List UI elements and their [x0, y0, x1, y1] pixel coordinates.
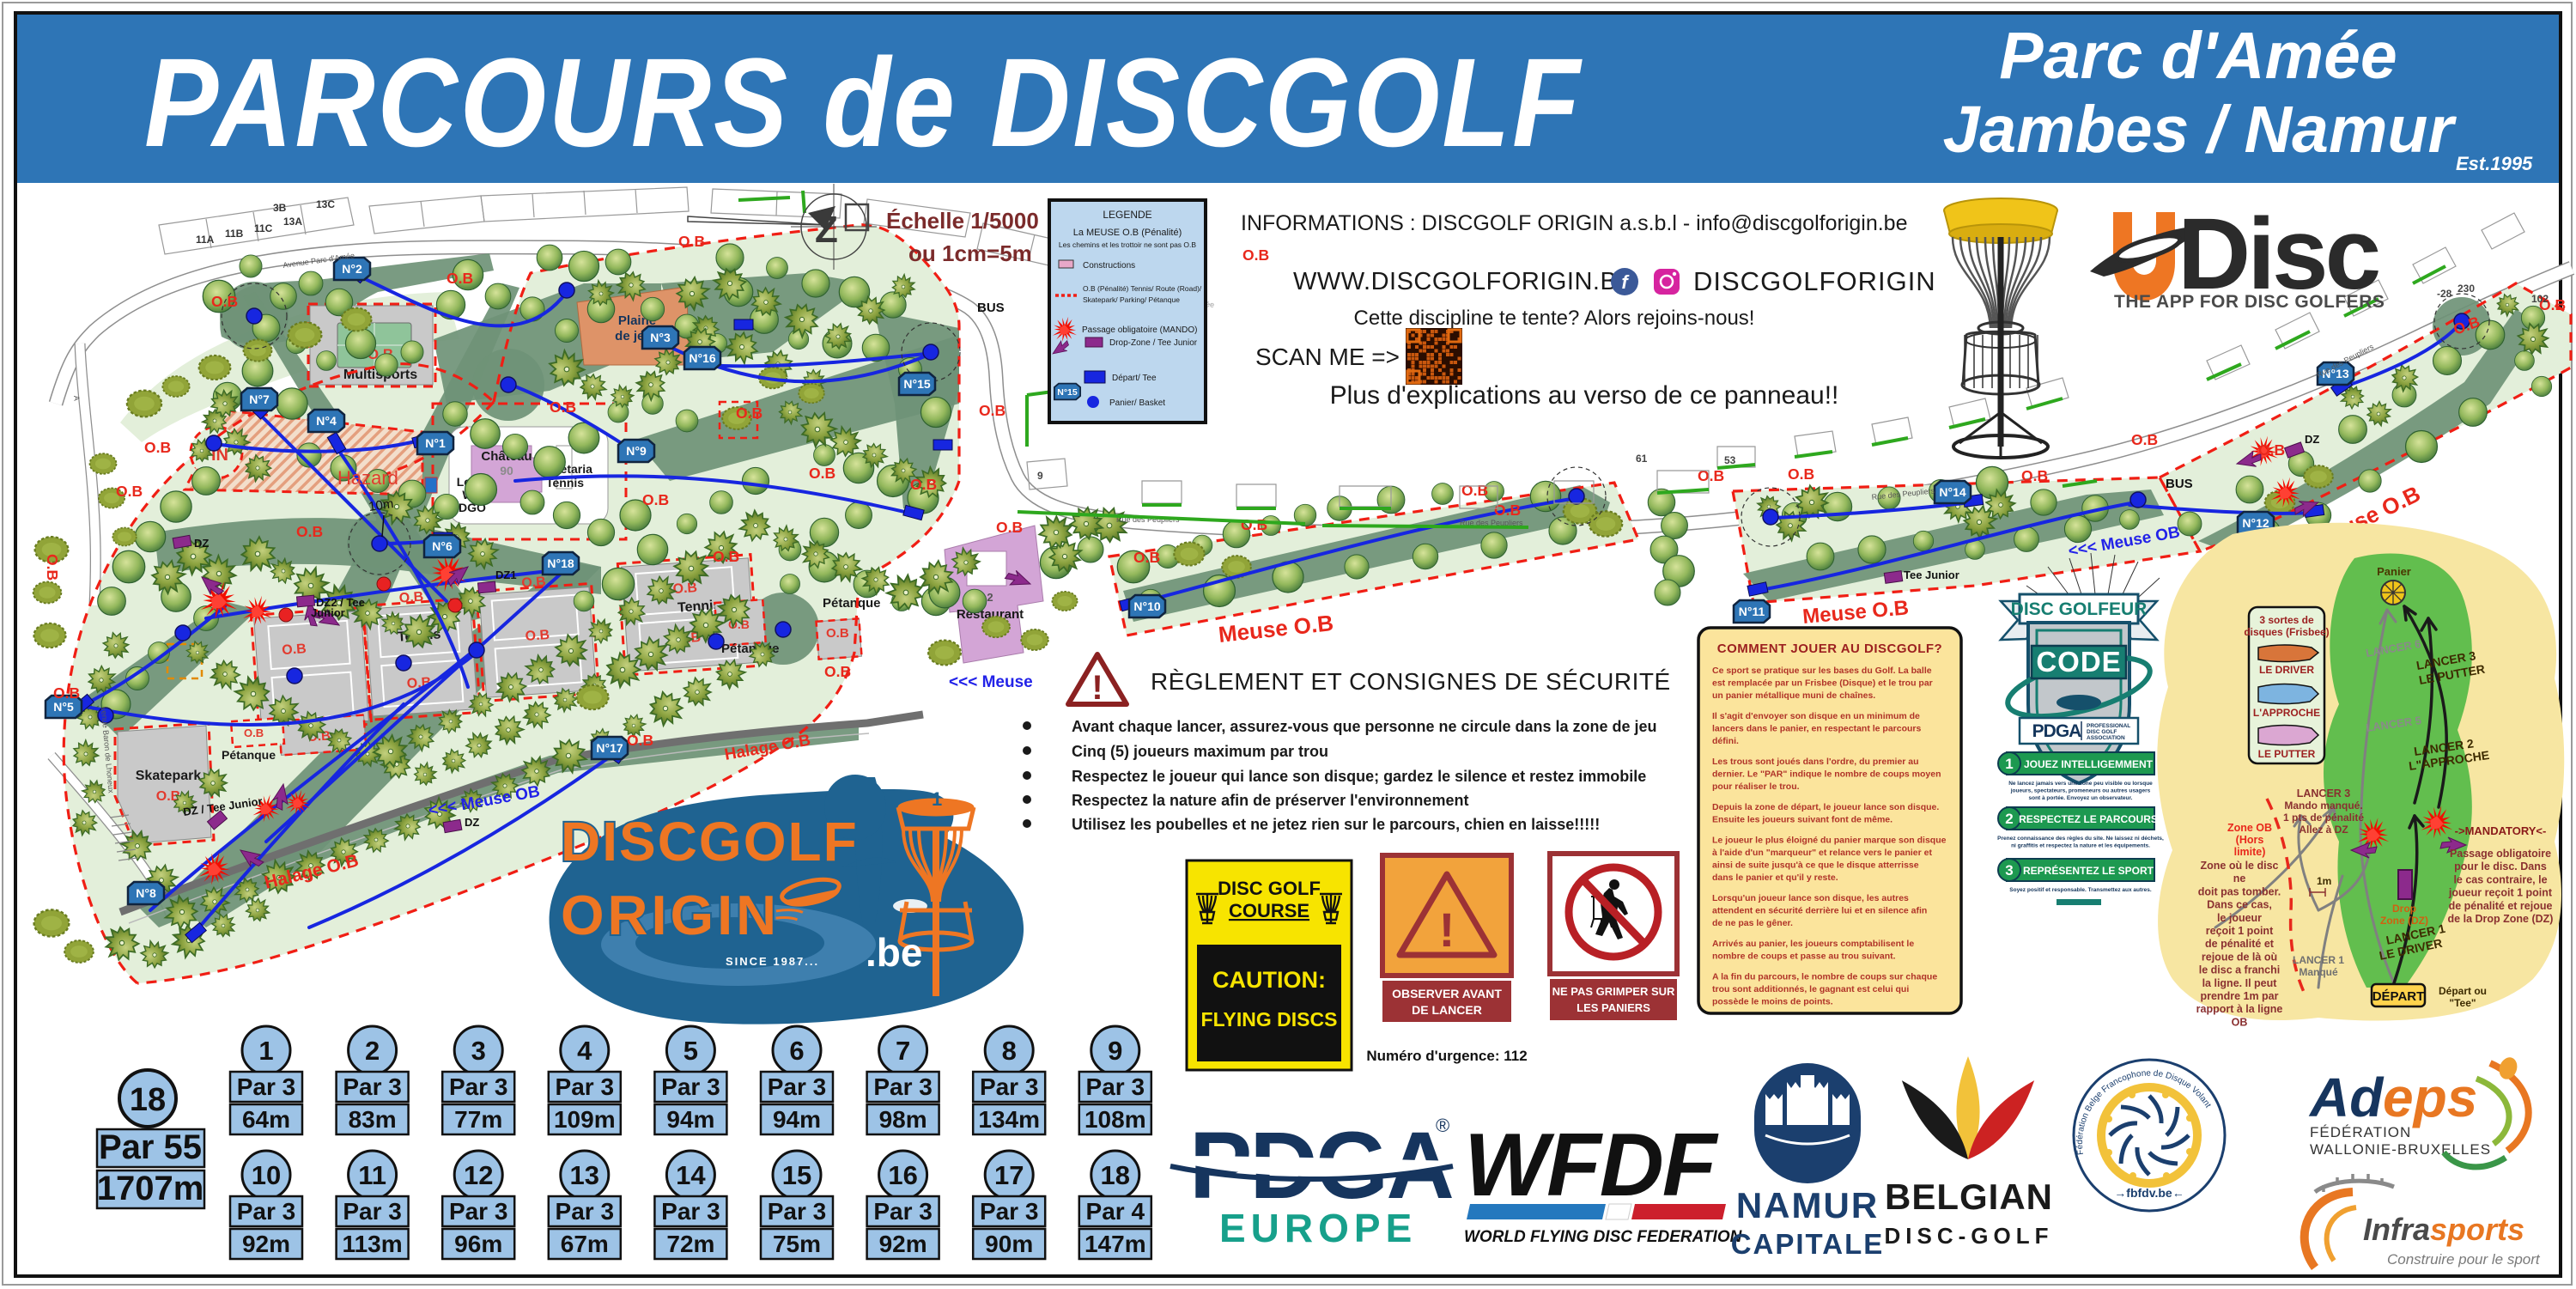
svg-text:Cette discipline te tente? Alo: Cette discipline te tente? Alors rejoins…: [1354, 307, 1755, 330]
svg-text:défini.: défini.: [1712, 736, 1739, 746]
svg-text:attendent en sécurité derrière: attendent en sécurité derrière lui et en…: [1712, 906, 1927, 916]
svg-text:de ne pas le gêner.: de ne pas le gêner.: [1712, 918, 1793, 928]
svg-text:JOUEZ INTELLIGEMMENT: JOUEZ INTELLIGEMMENT: [2024, 758, 2154, 770]
svg-text:108m: 108m: [1084, 1106, 1146, 1133]
svg-text:O.B: O.B: [824, 663, 851, 680]
svg-text:est remplacée par un Frisbee (: est remplacée par un Frisbee (Disque) et…: [1712, 678, 1933, 689]
svg-text:pour réaliser le trou.: pour réaliser le trou.: [1712, 781, 1800, 792]
svg-text:Zone (DZ): Zone (DZ): [2380, 915, 2428, 927]
svg-text:Meuse O.B: Meuse O.B: [1801, 596, 1910, 629]
svg-text:A la fin du parcours, le nombr: A la fin du parcours, le nombre de coups…: [1712, 972, 1937, 982]
svg-text:O.B: O.B: [736, 404, 762, 422]
svg-text:Par 3: Par 3: [237, 1198, 296, 1225]
svg-text:de pénalité et: de pénalité et: [2205, 938, 2275, 950]
svg-text:Par 3: Par 3: [980, 1198, 1039, 1225]
svg-text:N°17: N°17: [596, 741, 623, 755]
svg-text:N°3: N°3: [650, 331, 671, 344]
svg-text:ni graffitis et respectez la n: ni graffitis et respectez la nature et l…: [2011, 843, 2150, 849]
svg-text:Construire pour le sport: Construire pour le sport: [2387, 1251, 2541, 1268]
svg-text:disques (Frisbee): disques (Frisbee): [2244, 626, 2329, 638]
svg-text:O.B: O.B: [144, 439, 171, 456]
svg-text:90: 90: [500, 464, 513, 477]
svg-text:ainsi de suite jusqu'à ce que: ainsi de suite jusqu'à ce que le disque …: [1712, 860, 1919, 871]
svg-text:O.B: O.B: [826, 626, 849, 641]
svg-text:Par 3: Par 3: [661, 1073, 720, 1100]
svg-text:CODE: CODE: [2036, 646, 2121, 678]
svg-text:lancers dans le panier, en res: lancers dans le panier, en respectant le…: [1712, 724, 1922, 734]
svg-text:N°5: N°5: [53, 700, 74, 714]
svg-text:Pétanque: Pétanque: [222, 748, 276, 762]
svg-text:13: 13: [570, 1160, 599, 1190]
svg-text:reçoit 1 point: reçoit 1 point: [2206, 925, 2274, 937]
svg-text:Par 3: Par 3: [556, 1198, 615, 1225]
svg-text:2: 2: [365, 1036, 380, 1066]
svg-text:joueur reçoit 1 point: joueur reçoit 1 point: [2448, 887, 2553, 899]
svg-text:Lorsqu'un joueur lance son dis: Lorsqu'un joueur lance son disque, les a…: [1712, 893, 1909, 903]
svg-text:Allez à DZ: Allez à DZ: [2299, 824, 2348, 836]
svg-text:LE PUTTER: LE PUTTER: [2258, 748, 2316, 760]
svg-text:Par 3: Par 3: [661, 1198, 720, 1225]
svg-text:92m: 92m: [242, 1231, 290, 1257]
svg-text:O.B: O.B: [1461, 482, 1488, 499]
svg-text:COMMENT JOUER AU DISCGOLF?: COMMENT JOUER AU DISCGOLF?: [1717, 641, 1942, 656]
svg-text:LE DRIVER: LE DRIVER: [2259, 664, 2314, 676]
svg-text:trou sont additionnés, le gagn: trou sont additionnés, le gagnant est ce…: [1712, 984, 1909, 994]
svg-text:75m: 75m: [773, 1231, 821, 1257]
svg-text:REPRÉSENTEZ LE SPORT: REPRÉSENTEZ LE SPORT: [2023, 864, 2154, 877]
svg-text:nombre de coups et passe au tr: nombre de coups et passe au trou suivant…: [1712, 952, 1896, 962]
svg-text:53: 53: [1724, 454, 1736, 466]
svg-text:18: 18: [1101, 1160, 1130, 1190]
svg-text:O.B: O.B: [398, 590, 424, 606]
svg-text:Infrasports: Infrasports: [2363, 1212, 2524, 1247]
svg-text:WALLONIE-BRUXELLES: WALLONIE-BRUXELLES: [2310, 1141, 2491, 1158]
svg-text:O.B: O.B: [1698, 467, 1724, 484]
svg-text:O.B: O.B: [1494, 502, 1521, 519]
svg-text:O.B: O.B: [1241, 516, 1267, 533]
svg-text:Passage obligatoire: Passage obligatoire: [2450, 848, 2551, 860]
svg-text:COURSE: COURSE: [1229, 900, 1309, 921]
svg-text:La MEUSE O.B (Pénalité): La MEUSE O.B (Pénalité): [1073, 228, 1182, 238]
svg-text:Ce sport se pratique sur les b: Ce sport se pratique sur les bases du Go…: [1712, 666, 1932, 676]
svg-text:Zone où le disc: Zone où le disc: [2201, 860, 2279, 872]
svg-text:Les chemins et les trottoir ne: Les chemins et les trottoir ne sont pas …: [1059, 240, 1196, 249]
svg-text:Panier/ Basket: Panier/ Basket: [1109, 398, 1165, 408]
svg-text:DISCGOLFORIGIN: DISCGOLFORIGIN: [1693, 266, 1936, 296]
svg-text:N°7: N°7: [249, 392, 270, 406]
svg-text:pour le disc. Dans: pour le disc. Dans: [2454, 860, 2547, 873]
svg-text:dans le panier et qu'il y rest: dans le panier et qu'il y reste.: [1712, 873, 1838, 883]
svg-text:1 pts de pénalité: 1 pts de pénalité: [2283, 812, 2364, 824]
svg-text:O.B: O.B: [525, 628, 550, 644]
svg-text:Avant chaque lancer, assurez-v: Avant chaque lancer, assurez-vous que pe…: [1072, 718, 1657, 735]
svg-text:Départ ou: Départ ou: [2439, 985, 2487, 997]
svg-text:11A: 11A: [196, 234, 215, 246]
svg-text:11C: 11C: [254, 222, 273, 234]
svg-text:Respectez le joueur qui lance: Respectez le joueur qui lance son disque…: [1072, 768, 1646, 785]
svg-text:N°15: N°15: [1057, 387, 1078, 398]
svg-text:Skatepark: Skatepark: [136, 769, 202, 783]
svg-text:Soyez positif et responsable.: Soyez positif et responsable. Transmette…: [2009, 887, 2152, 893]
svg-text:Skatepark/ Parking/ Pétanque: Skatepark/ Parking/ Pétanque: [1083, 295, 1180, 304]
svg-text:Par 4: Par 4: [1086, 1198, 1145, 1225]
svg-text:72m: 72m: [666, 1231, 714, 1257]
svg-text:O.B: O.B: [996, 519, 1023, 536]
svg-text:O.B: O.B: [678, 233, 705, 250]
svg-text:1: 1: [258, 1036, 273, 1066]
svg-text:64m: 64m: [242, 1106, 290, 1133]
svg-text:Pétanque: Pétanque: [823, 596, 881, 611]
svg-text:rejoue de là où: rejoue de là où: [2202, 951, 2277, 963]
svg-text:Par 3: Par 3: [343, 1073, 402, 1100]
svg-text:Par 3: Par 3: [768, 1073, 827, 1100]
svg-text:®: ®: [1436, 1115, 1449, 1136]
svg-text:RESPECTEZ LE PARCOURS: RESPECTEZ LE PARCOURS: [2019, 813, 2158, 825]
svg-text:le disc a franchi: le disc a franchi: [2199, 964, 2280, 976]
svg-text:ORIGIN: ORIGIN: [561, 884, 780, 946]
svg-text:96m: 96m: [454, 1231, 502, 1257]
svg-text:INFORMATIONS : DISCGOLF ORIGIN: INFORMATIONS : DISCGOLF ORIGIN a.s.b.l -…: [1241, 211, 1908, 235]
svg-text:98m: 98m: [879, 1106, 927, 1133]
svg-text:Par 3: Par 3: [768, 1198, 827, 1225]
svg-text:Mando manqué.: Mando manqué.: [2284, 800, 2362, 812]
svg-text:1707m: 1707m: [97, 1170, 204, 1207]
svg-text:N°6: N°6: [432, 539, 453, 553]
svg-text:102: 102: [2531, 293, 2549, 305]
svg-text:230: 230: [2458, 283, 2475, 295]
svg-text:-28: -28: [2437, 288, 2452, 300]
svg-text:90m: 90m: [985, 1231, 1033, 1257]
svg-text:O.B: O.B: [550, 398, 576, 416]
svg-text:ne: ne: [2233, 873, 2246, 885]
svg-text:Par 3: Par 3: [237, 1073, 296, 1100]
svg-text:18: 18: [130, 1082, 166, 1118]
svg-text:le joueur: le joueur: [2217, 912, 2262, 924]
svg-text:rapport à la ligne: rapport à la ligne: [2196, 1003, 2283, 1015]
svg-text:7: 7: [896, 1036, 910, 1066]
svg-text:à l'aide d'un "marqueur" et re: à l'aide d'un "marqueur" et relance vers…: [1712, 848, 1932, 858]
svg-text:O.B: O.B: [296, 523, 323, 540]
svg-text:de pénalité et rejoue: de pénalité et rejoue: [2449, 900, 2553, 912]
svg-text:BUS: BUS: [977, 301, 1005, 315]
svg-text:Ensuite les joueurs suivant fo: Ensuite les joueurs suivant font de même…: [1712, 815, 1893, 825]
svg-text:BUS: BUS: [2166, 477, 2193, 491]
svg-text:(Hors: (Hors: [2236, 834, 2264, 846]
svg-text:O.B: O.B: [713, 548, 739, 565]
svg-text:Panier: Panier: [2377, 565, 2411, 578]
svg-text:.be: .be: [866, 930, 922, 975]
svg-text:9: 9: [1108, 1036, 1122, 1066]
svg-text:LEGENDE: LEGENDE: [1103, 209, 1151, 221]
svg-text:Par 3: Par 3: [449, 1073, 508, 1100]
svg-text:O.B: O.B: [672, 581, 698, 597]
svg-text:DÉPART: DÉPART: [2372, 989, 2425, 1004]
svg-text:DISC GOLF: DISC GOLF: [1218, 878, 1321, 899]
svg-text:O.B: O.B: [642, 491, 669, 508]
svg-text:11B: 11B: [225, 228, 244, 240]
svg-text:Junior: Junior: [311, 606, 345, 619]
svg-text:Plus d'explications au verso d: Plus d'explications au verso de ce panne…: [1330, 381, 1839, 410]
svg-text:113m: 113m: [343, 1231, 403, 1257]
svg-text:O.B: O.B: [116, 483, 143, 500]
svg-text:O.B: O.B: [809, 465, 835, 482]
svg-text:Ne lancez jamais vers une zone: Ne lancez jamais vers une zone peu visib…: [2008, 781, 2153, 787]
svg-text:Il s'agit d'envoyer son disque: Il s'agit d'envoyer son disque en un min…: [1712, 711, 1920, 721]
svg-text:ou 1cm=5m: ou 1cm=5m: [908, 240, 1032, 266]
svg-text:EUROPE: EUROPE: [1219, 1206, 1417, 1250]
svg-text:DISC GOLFEUR: DISC GOLFEUR: [2011, 599, 2148, 619]
svg-text:!: !: [1439, 903, 1455, 957]
svg-text:→fbfdv.be←: →fbfdv.be←: [2114, 1186, 2184, 1200]
svg-text:DZ1: DZ1: [495, 568, 517, 581]
svg-text:2: 2: [2005, 811, 2013, 827]
svg-text:le cas contraire, le: le cas contraire, le: [2453, 873, 2547, 885]
svg-text:Tee Junior: Tee Junior: [1904, 568, 1959, 581]
svg-text:DISC GOLF: DISC GOLF: [2087, 729, 2117, 735]
svg-text:CAUTION:: CAUTION:: [1212, 967, 1326, 993]
svg-text:WWW.DISCGOLFORIGIN.BE: WWW.DISCGOLFORIGIN.BE: [1293, 268, 1634, 295]
svg-text:3: 3: [471, 1036, 486, 1066]
svg-text:O.B: O.B: [1133, 549, 1160, 566]
svg-text:BELGIAN: BELGIAN: [1885, 1177, 2053, 1217]
svg-text:Échelle 1/5000: Échelle 1/5000: [886, 208, 1039, 234]
svg-text:15: 15: [782, 1160, 811, 1190]
svg-text:109m: 109m: [554, 1106, 616, 1133]
svg-text:LANCER 3: LANCER 3: [2297, 787, 2351, 800]
svg-text:Arrivés au panier, les joueurs: Arrivés au panier, les joueurs comptabil…: [1712, 939, 1914, 949]
svg-text:3: 3: [2005, 862, 2013, 879]
svg-text:77m: 77m: [454, 1106, 502, 1133]
svg-text:PROFESSIONAL: PROFESSIONAL: [2087, 723, 2130, 729]
svg-text:N°16: N°16: [689, 351, 715, 365]
svg-text:PDGA: PDGA: [2032, 721, 2082, 741]
svg-text:ASSOCIATION: ASSOCIATION: [2087, 735, 2125, 741]
svg-text:O.B: O.B: [244, 727, 264, 739]
svg-text:Zone OB: Zone OB: [2227, 822, 2272, 834]
svg-text:FÉDÉRATION: FÉDÉRATION: [2310, 1124, 2411, 1140]
svg-text:Depuis la zone de départ, le j: Depuis la zone de départ, le joueur lanc…: [1712, 802, 1939, 812]
svg-text:L'APPROCHE: L'APPROCHE: [2253, 707, 2320, 719]
svg-text:DZ: DZ: [465, 816, 479, 829]
svg-text:8: 8: [1002, 1036, 1017, 1066]
svg-text:O.B: O.B: [1788, 465, 1814, 483]
svg-text:2: 2: [987, 591, 993, 604]
svg-text:DE LANCER: DE LANCER: [1412, 1003, 1482, 1017]
svg-text:Par 3: Par 3: [556, 1073, 615, 1100]
svg-text:WORLD FLYING DISC FEDERATION: WORLD FLYING DISC FEDERATION: [1464, 1228, 1743, 1246]
svg-text:3 sortes de: 3 sortes de: [2259, 614, 2314, 626]
svg-text:6: 6: [789, 1036, 804, 1066]
svg-text:dernier. Le "PAR" indique le n: dernier. Le "PAR" indique le nombre de c…: [1712, 769, 1941, 780]
svg-text:Par 3: Par 3: [449, 1198, 508, 1225]
svg-text:61: 61: [1636, 453, 1648, 465]
svg-text:5: 5: [683, 1036, 698, 1066]
svg-text:Par 3: Par 3: [873, 1198, 933, 1225]
svg-text:Drop-Zone / Tee Junior: Drop-Zone / Tee Junior: [1109, 338, 1198, 348]
svg-text:N°2: N°2: [342, 262, 362, 276]
svg-text:Passage obligatoire (MANDO): Passage obligatoire (MANDO): [1082, 325, 1198, 335]
svg-text:O.B: O.B: [910, 476, 937, 493]
svg-text:O.B: O.B: [627, 732, 653, 749]
svg-text:Prenez connaissance des règles: Prenez connaissance des règles du site. …: [1997, 836, 2164, 842]
svg-text:O.B: O.B: [2131, 431, 2158, 448]
svg-text:Numéro d'urgence: 112: Numéro d'urgence: 112: [1366, 1048, 1527, 1064]
svg-text:"Tee": "Tee": [2449, 997, 2476, 1009]
svg-text:la ligne. Il peut: la ligne. Il peut: [2202, 977, 2278, 989]
svg-text:un panier métallique muni de c: un panier métallique muni de chaînes.: [1712, 690, 1875, 701]
svg-text:N°15: N°15: [903, 377, 930, 391]
svg-text:O.B: O.B: [211, 293, 238, 310]
svg-text:Z: Z: [815, 209, 838, 251]
svg-text:N°8: N°8: [136, 886, 156, 900]
svg-text:THE APP FOR DISC GOLFERS: THE APP FOR DISC GOLFERS: [2114, 292, 2385, 312]
svg-text:1: 1: [932, 788, 942, 810]
svg-text:NAMUR: NAMUR: [1736, 1185, 1879, 1225]
svg-text:de la Drop Zone (DZ): de la Drop Zone (DZ): [2448, 913, 2554, 925]
svg-text:83m: 83m: [349, 1106, 397, 1133]
svg-text:Départ/ Tee: Départ/ Tee: [1112, 374, 1157, 383]
svg-text:doit pas tomber.: doit pas tomber.: [2198, 885, 2281, 897]
svg-text:Respectez la nature afin de pr: Respectez la nature afin de préserver l'…: [1072, 792, 1468, 809]
svg-text:Les trous sont joués dans l'or: Les trous sont joués dans l'ordre, du pr…: [1712, 757, 1919, 767]
svg-text:Par 3: Par 3: [980, 1073, 1039, 1100]
svg-text:Le joueur le plus éloigné du p: Le joueur le plus éloigné du panier marq…: [1712, 836, 1947, 846]
svg-text:94m: 94m: [773, 1106, 821, 1133]
svg-text:possède le moins de points.: possède le moins de points.: [1712, 997, 1833, 1007]
svg-text:11: 11: [358, 1160, 386, 1190]
svg-text:Constructions: Constructions: [1083, 261, 1135, 271]
svg-text:RÈGLEMENT ET CONSIGNES DE SÉCU: RÈGLEMENT ET CONSIGNES DE SÉCURITÉ: [1151, 668, 1671, 695]
svg-text:O.B (Pénalité) Tennis/ Route (: O.B (Pénalité) Tennis/ Route (Road)/: [1083, 284, 1202, 293]
svg-text:WFDF: WFDF: [1464, 1116, 1719, 1215]
svg-text:O.B: O.B: [979, 402, 1005, 419]
svg-text:12: 12: [464, 1160, 493, 1190]
svg-text:Par 55: Par 55: [99, 1128, 202, 1166]
svg-text:SINCE 1987...: SINCE 1987...: [726, 955, 819, 968]
svg-text:OBSERVER AVANT: OBSERVER AVANT: [1392, 987, 1502, 1000]
svg-text:10: 10: [252, 1160, 281, 1190]
svg-text:sont à portée. Envoyez un obse: sont à portée. Envoyez un observateur.: [2028, 795, 2132, 801]
svg-text:DZ: DZ: [2305, 433, 2319, 446]
svg-text:O.B: O.B: [447, 270, 473, 287]
svg-text:N°12: N°12: [2242, 516, 2269, 530]
svg-text:Ad: Ad: [2308, 1067, 2385, 1128]
svg-text:Dans ce cas,: Dans ce cas,: [2207, 899, 2272, 911]
svg-text:FLYING DISCS: FLYING DISCS: [1201, 1008, 1338, 1031]
svg-text:O.B: O.B: [1242, 246, 1269, 264]
svg-text:!: !: [1091, 669, 1103, 707]
svg-text:14: 14: [676, 1160, 706, 1190]
svg-text:Manqué: Manqué: [2299, 966, 2338, 978]
svg-text:92m: 92m: [879, 1231, 927, 1257]
svg-text:LES PANIERS: LES PANIERS: [1577, 1001, 1650, 1014]
svg-text:N°1: N°1: [425, 436, 446, 450]
svg-text:1: 1: [2005, 756, 2013, 772]
svg-text:17: 17: [994, 1160, 1024, 1190]
svg-text:1m: 1m: [2317, 875, 2331, 887]
svg-text:SCAN ME =>: SCAN ME =>: [1255, 344, 1400, 370]
svg-text:O.B: O.B: [44, 554, 61, 581]
svg-text:N°4: N°4: [316, 414, 337, 428]
svg-text:Par 3: Par 3: [1086, 1073, 1145, 1100]
svg-text:134m: 134m: [978, 1106, 1040, 1133]
svg-text:O.B: O.B: [2021, 467, 2048, 484]
svg-text:O.B: O.B: [282, 641, 307, 658]
svg-text:NE PAS GRIMPER SUR: NE PAS GRIMPER SUR: [1552, 985, 1675, 998]
svg-text:Cinq (5) joueurs maximum par t: Cinq (5) joueurs maximum par trou: [1072, 743, 1328, 760]
svg-text:13C: 13C: [316, 198, 335, 210]
svg-text:N°10: N°10: [1133, 599, 1160, 613]
svg-text:<<< Meuse: <<< Meuse: [949, 673, 1033, 691]
svg-text:94m: 94m: [666, 1106, 714, 1133]
svg-text:N°18: N°18: [547, 556, 574, 570]
svg-text:Drop: Drop: [2392, 903, 2416, 915]
svg-text:3B: 3B: [273, 202, 287, 214]
svg-text:DZ: DZ: [194, 537, 209, 550]
svg-text:OB: OB: [2232, 1016, 2248, 1028]
svg-text:eps: eps: [2383, 1067, 2477, 1128]
svg-text:67m: 67m: [561, 1231, 609, 1257]
svg-text:Utilisez les poubelles et ne j: Utilisez les poubelles et ne jetez rien …: [1072, 816, 1600, 833]
svg-text:CAPITALE: CAPITALE: [1731, 1228, 1885, 1260]
svg-text:147m: 147m: [1084, 1231, 1146, 1257]
svg-text:O.B: O.B: [2258, 441, 2285, 459]
svg-text:prendre 1m par: prendre 1m par: [2200, 990, 2278, 1002]
svg-text:N°9: N°9: [626, 444, 647, 458]
svg-text:Hazard: Hazard: [337, 467, 398, 489]
svg-text:9: 9: [1037, 470, 1043, 482]
svg-text:DISCGOLF: DISCGOLF: [561, 811, 859, 873]
svg-text:Par 3: Par 3: [343, 1198, 402, 1225]
svg-text:LANCER 1: LANCER 1: [2293, 954, 2344, 966]
svg-text:O.B: O.B: [53, 684, 80, 702]
svg-text:4: 4: [577, 1036, 592, 1066]
svg-text:limite): limite): [2234, 846, 2266, 858]
svg-text:N°14: N°14: [1939, 485, 1965, 499]
svg-text:joueurs, spectateurs, promeneu: joueurs, spectateurs, promeneurs ou autr…: [2010, 788, 2151, 794]
svg-text:13A: 13A: [283, 216, 302, 228]
svg-text:DISC-GOLF: DISC-GOLF: [1885, 1223, 2054, 1249]
svg-text:16: 16: [888, 1160, 917, 1190]
svg-text:->MANDATORY<-: ->MANDATORY<-: [2455, 824, 2547, 837]
svg-text:Par 3: Par 3: [873, 1073, 933, 1100]
svg-text:N°11: N°11: [1739, 605, 1765, 618]
